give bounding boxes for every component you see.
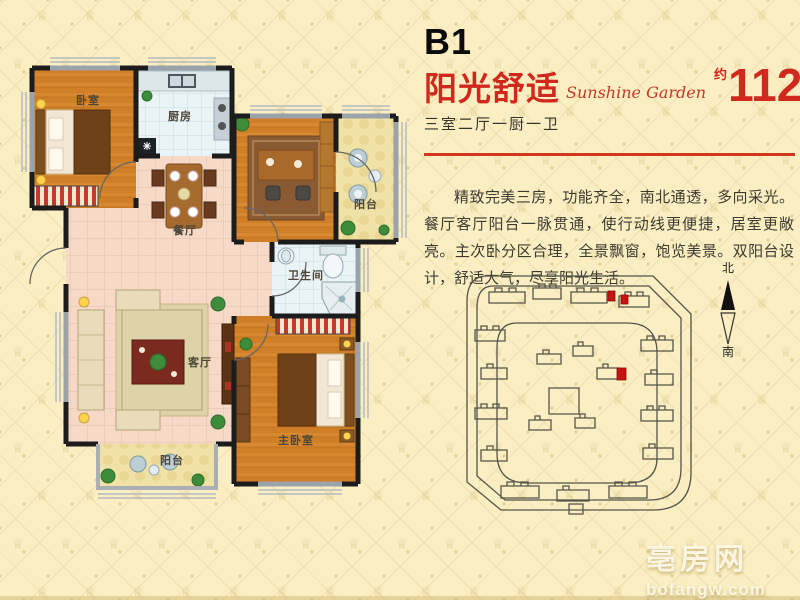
room-label-dining: 餐厅 <box>172 223 197 237</box>
site-map <box>456 268 698 518</box>
room-label-balcony-bottom: 阳台 <box>160 453 184 467</box>
title-cn: 阳光舒适 <box>424 72 560 105</box>
room-label-balcony-top: 阳台 <box>354 197 378 211</box>
room-label-bedroom: 卧室 <box>76 93 100 107</box>
compass-north-label: 北 <box>722 261 734 275</box>
highlighted-units <box>608 291 628 380</box>
room-label-bathroom: 卫生间 <box>288 268 324 282</box>
watermark-domain: bofangw.com <box>646 580 766 600</box>
room-label-kitchen: 厨房 <box>168 109 192 123</box>
bay-window-master <box>276 318 350 334</box>
plan-code: B1 <box>424 22 796 62</box>
area-approx-label: 约 <box>714 64 727 83</box>
bed-icon <box>36 100 110 185</box>
floor-plan: 卧室 厨房 餐厅 阳台 卫生间 客厅 阳台 主卧室 <box>20 52 412 522</box>
header: B1 阳光舒适 Sunshine Garden 约 112 m 2 三室二厅一厨… <box>424 22 796 134</box>
page: ♕♕♕♕♕♕♕♕♕♕♕♕♕♕♕♕♕♕♕♕♕♕♕♕♕♕♕♕♕♕♕♕♕♕♕♕♕♕♕♕… <box>0 0 800 600</box>
title-en: Sunshine Garden <box>566 83 706 102</box>
layout-summary: 三室二厅一厨一卫 <box>424 113 796 134</box>
compass-icon: 北 南 <box>706 258 750 358</box>
bay-window-bedroom <box>34 186 98 206</box>
room-label-living: 客厅 <box>187 355 212 369</box>
compass-south-label: 南 <box>722 344 734 358</box>
title-row: 阳光舒适 Sunshine Garden 约 112 m 2 <box>424 64 796 105</box>
watermark: 亳房网 bofangw.com <box>646 534 766 600</box>
area-value: 112 <box>728 66 800 105</box>
divider-line <box>424 153 795 156</box>
watermark-brand: 亳房网 <box>646 534 766 578</box>
room-label-master-bedroom: 主卧室 <box>278 433 314 447</box>
